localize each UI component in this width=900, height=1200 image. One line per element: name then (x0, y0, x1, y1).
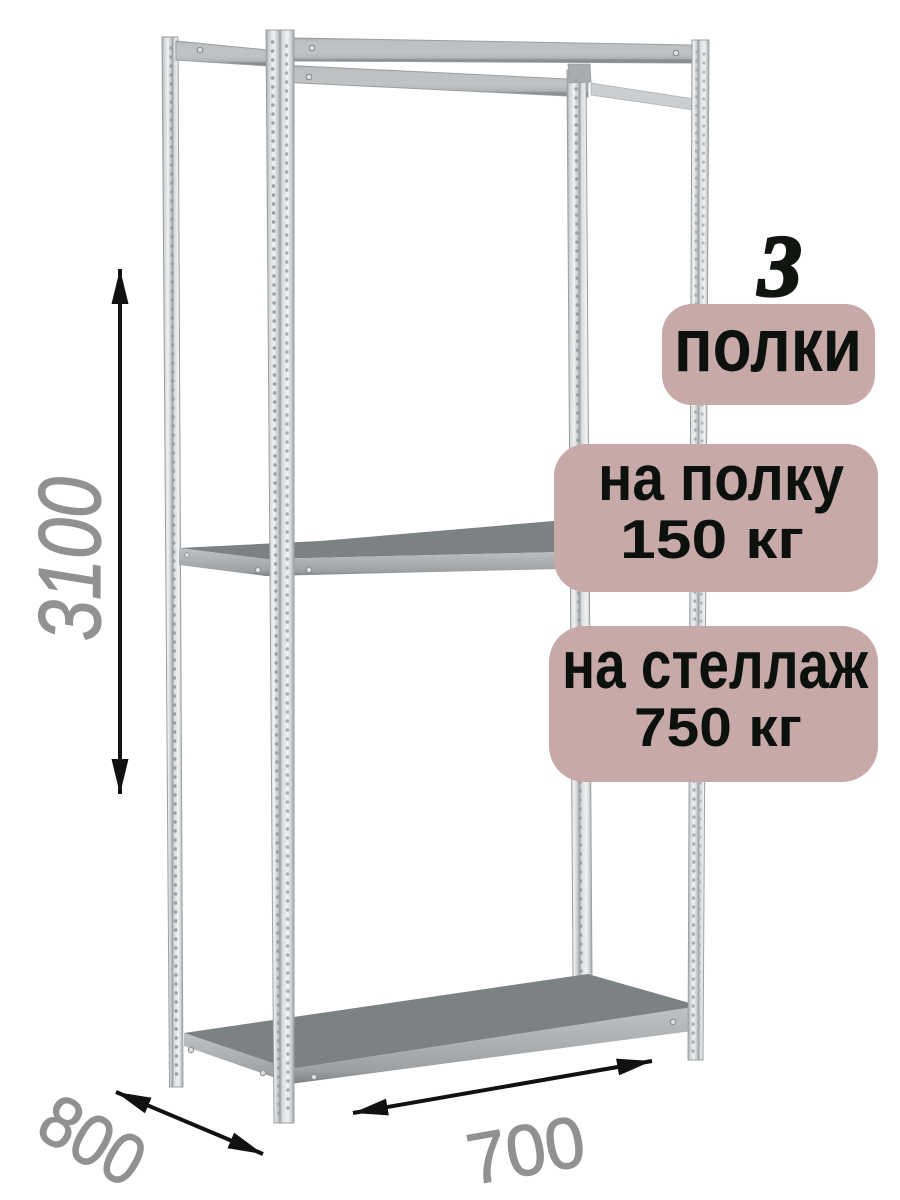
svg-text:800: 800 (25, 1079, 159, 1200)
svg-text:на стеллаж: на стеллаж (562, 627, 869, 703)
svg-text:полки: полки (674, 303, 862, 388)
svg-text:на полку: на полку (598, 442, 844, 514)
svg-text:3100: 3100 (20, 477, 119, 641)
svg-text:150 кг: 150 кг (620, 508, 804, 570)
svg-text:3: 3 (757, 217, 802, 314)
svg-text:700: 700 (461, 1101, 591, 1200)
svg-text:750 кг: 750 кг (634, 696, 802, 758)
